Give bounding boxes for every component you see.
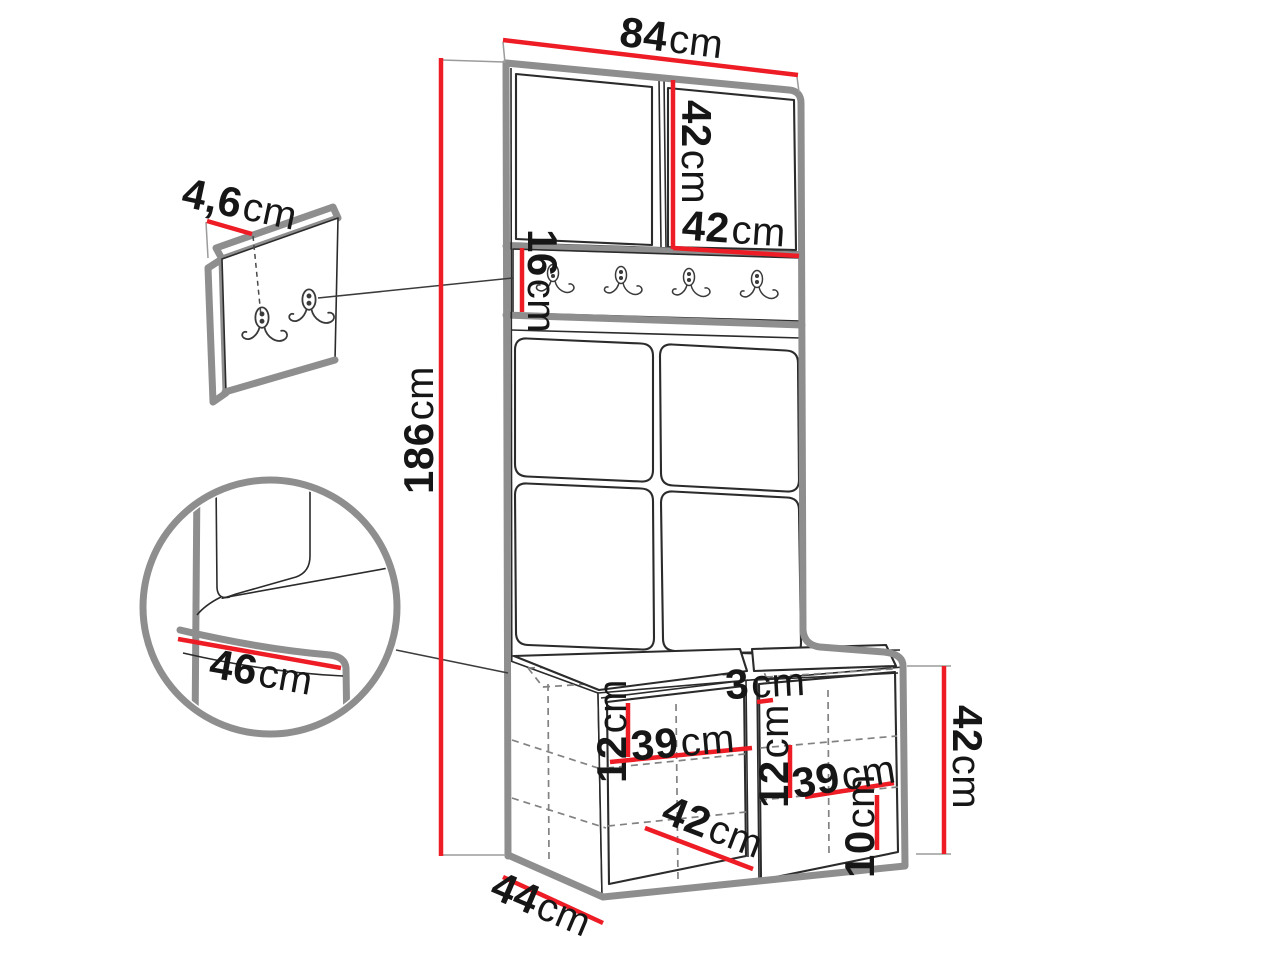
detail-seat-back-edge — [222, 567, 394, 598]
dim-total-height-label: 186cm — [395, 366, 442, 494]
detail-leader-line — [396, 650, 508, 673]
detail-corner-crease — [197, 597, 221, 615]
detail-side-inner-line — [216, 480, 230, 598]
dim-left-shelf-width-label: 39cm — [629, 714, 737, 770]
dim-seat-gap-label: 3cm — [724, 657, 807, 708]
dim-left-shelf-gap-label: 12cm — [588, 679, 635, 783]
dim-wall-panel-thickness-extension — [206, 222, 208, 258]
wall-panel-detail — [208, 207, 513, 402]
dim-bench-height-label: 42cm — [944, 705, 991, 809]
detail-side-edge — [195, 478, 197, 736]
dim-bottom-shelf-gap-label: 10cm — [836, 774, 883, 878]
unit-outline-left — [506, 63, 508, 856]
dim-hook-rail-height-label: 16cm — [519, 229, 566, 333]
corner-detail-magnifier — [143, 476, 508, 736]
dim-upper-panel-height-label: 42cm — [673, 100, 720, 204]
dim-right-shelf-gap-label: 12cm — [750, 704, 797, 808]
furniture-dimension-diagram: 84cm 42cm 42cm 16cm 186cm 4,6cm 46cm 12c… — [0, 0, 1280, 960]
diagram-canvas: 84cm 42cm 42cm 16cm 186cm 4,6cm 46cm 12c… — [0, 0, 1280, 960]
detail-back-cushion-edge — [222, 476, 310, 598]
dim-total-width-label: 84cm — [617, 8, 726, 67]
wall-panel-leader-line — [318, 278, 513, 298]
dim-total-height-extensions — [442, 60, 506, 855]
